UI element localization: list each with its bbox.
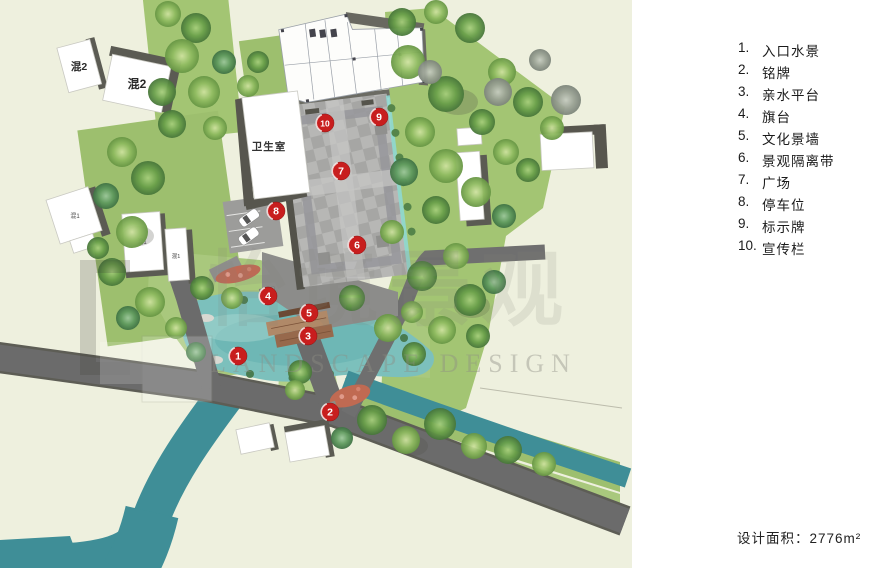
- legend-item-label: 标示牌: [762, 216, 806, 236]
- legend-item-label: 旗台: [762, 106, 791, 126]
- svg-text:2: 2: [327, 407, 333, 419]
- legend-item: 8.停车位: [738, 194, 877, 216]
- svg-text:1: 1: [235, 351, 241, 363]
- legend-item-number: 8.: [738, 194, 762, 209]
- svg-text:5: 5: [306, 308, 312, 320]
- clinic-label: 卫生室: [252, 140, 287, 153]
- svg-text:7: 7: [338, 166, 344, 178]
- legend-item-label: 广场: [762, 172, 791, 192]
- map-marker-8: 8: [267, 202, 285, 220]
- legend-item: 5.文化景墙: [738, 128, 877, 150]
- legend-item-number: 7.: [738, 172, 762, 187]
- map-marker-3: 3: [299, 327, 317, 345]
- map-marker-10: 10: [316, 114, 334, 132]
- legend-item-label: 铭牌: [762, 62, 791, 82]
- map-marker-4: 4: [259, 287, 277, 305]
- page: 混2 混2 卫生室: [0, 0, 877, 568]
- legend-item-number: 9.: [738, 216, 762, 231]
- legend-item-number: 1.: [738, 40, 762, 55]
- map-marker-9: 9: [370, 108, 388, 126]
- legend-list: 1.入口水景2.铭牌3.亲水平台4.旗台5.文化景墙6.景观隔离带7.广场8.停…: [738, 40, 877, 260]
- legend-item-number: 2.: [738, 62, 762, 77]
- map-marker-6: 6: [348, 236, 366, 254]
- legend-item-number: 3.: [738, 84, 762, 99]
- building-south-small: [284, 419, 335, 464]
- legend-panel: 1.入口水景2.铭牌3.亲水平台4.旗台5.文化景墙6.景观隔离带7.广场8.停…: [738, 40, 877, 260]
- legend-item-number: 5.: [738, 128, 762, 143]
- building-label: 混2: [71, 60, 87, 73]
- legend-item: 6.景观隔离带: [738, 150, 877, 172]
- svg-text:4: 4: [265, 291, 271, 303]
- legend-item: 4.旗台: [738, 106, 877, 128]
- legend-item-label: 景观隔离带: [762, 150, 835, 170]
- map-marker-1: 1: [229, 347, 247, 365]
- legend-item-label: 文化景墙: [762, 128, 820, 148]
- svg-text:6: 6: [354, 240, 360, 252]
- legend-item: 9.标示牌: [738, 216, 877, 238]
- legend-item-label: 宣传栏: [762, 238, 806, 258]
- legend-item: 10.宣传栏: [738, 238, 877, 260]
- svg-text:8: 8: [273, 206, 279, 218]
- legend-item-number: 6.: [738, 150, 762, 165]
- design-area-note: 设计面积：2776m²: [737, 527, 861, 547]
- legend-item-number: 4.: [738, 106, 762, 121]
- site-plan-svg: 混2 混2 卫生室: [0, 0, 640, 568]
- legend-item: 3.亲水平台: [738, 84, 877, 106]
- watermark-en: LANDSCAPE DESIGN: [210, 349, 577, 378]
- svg-text:10: 10: [320, 119, 330, 129]
- legend-item-label: 亲水平台: [762, 84, 820, 104]
- map-marker-5: 5: [300, 304, 318, 322]
- legend-item: 7.广场: [738, 172, 877, 194]
- legend-item: 2.铭牌: [738, 62, 877, 84]
- legend-item-number: 10.: [738, 238, 762, 253]
- svg-text:3: 3: [305, 331, 311, 343]
- legend-item: 1.入口水景: [738, 40, 877, 62]
- svg-text:9: 9: [376, 112, 382, 124]
- map-marker-2: 2: [321, 403, 339, 421]
- building-label: 混1: [70, 212, 80, 220]
- map-marker-7: 7: [332, 162, 350, 180]
- building-label: 混2: [128, 76, 147, 91]
- building-label: 混1: [172, 252, 181, 260]
- legend-item-label: 入口水景: [762, 40, 820, 60]
- legend-item-label: 停车位: [762, 194, 806, 214]
